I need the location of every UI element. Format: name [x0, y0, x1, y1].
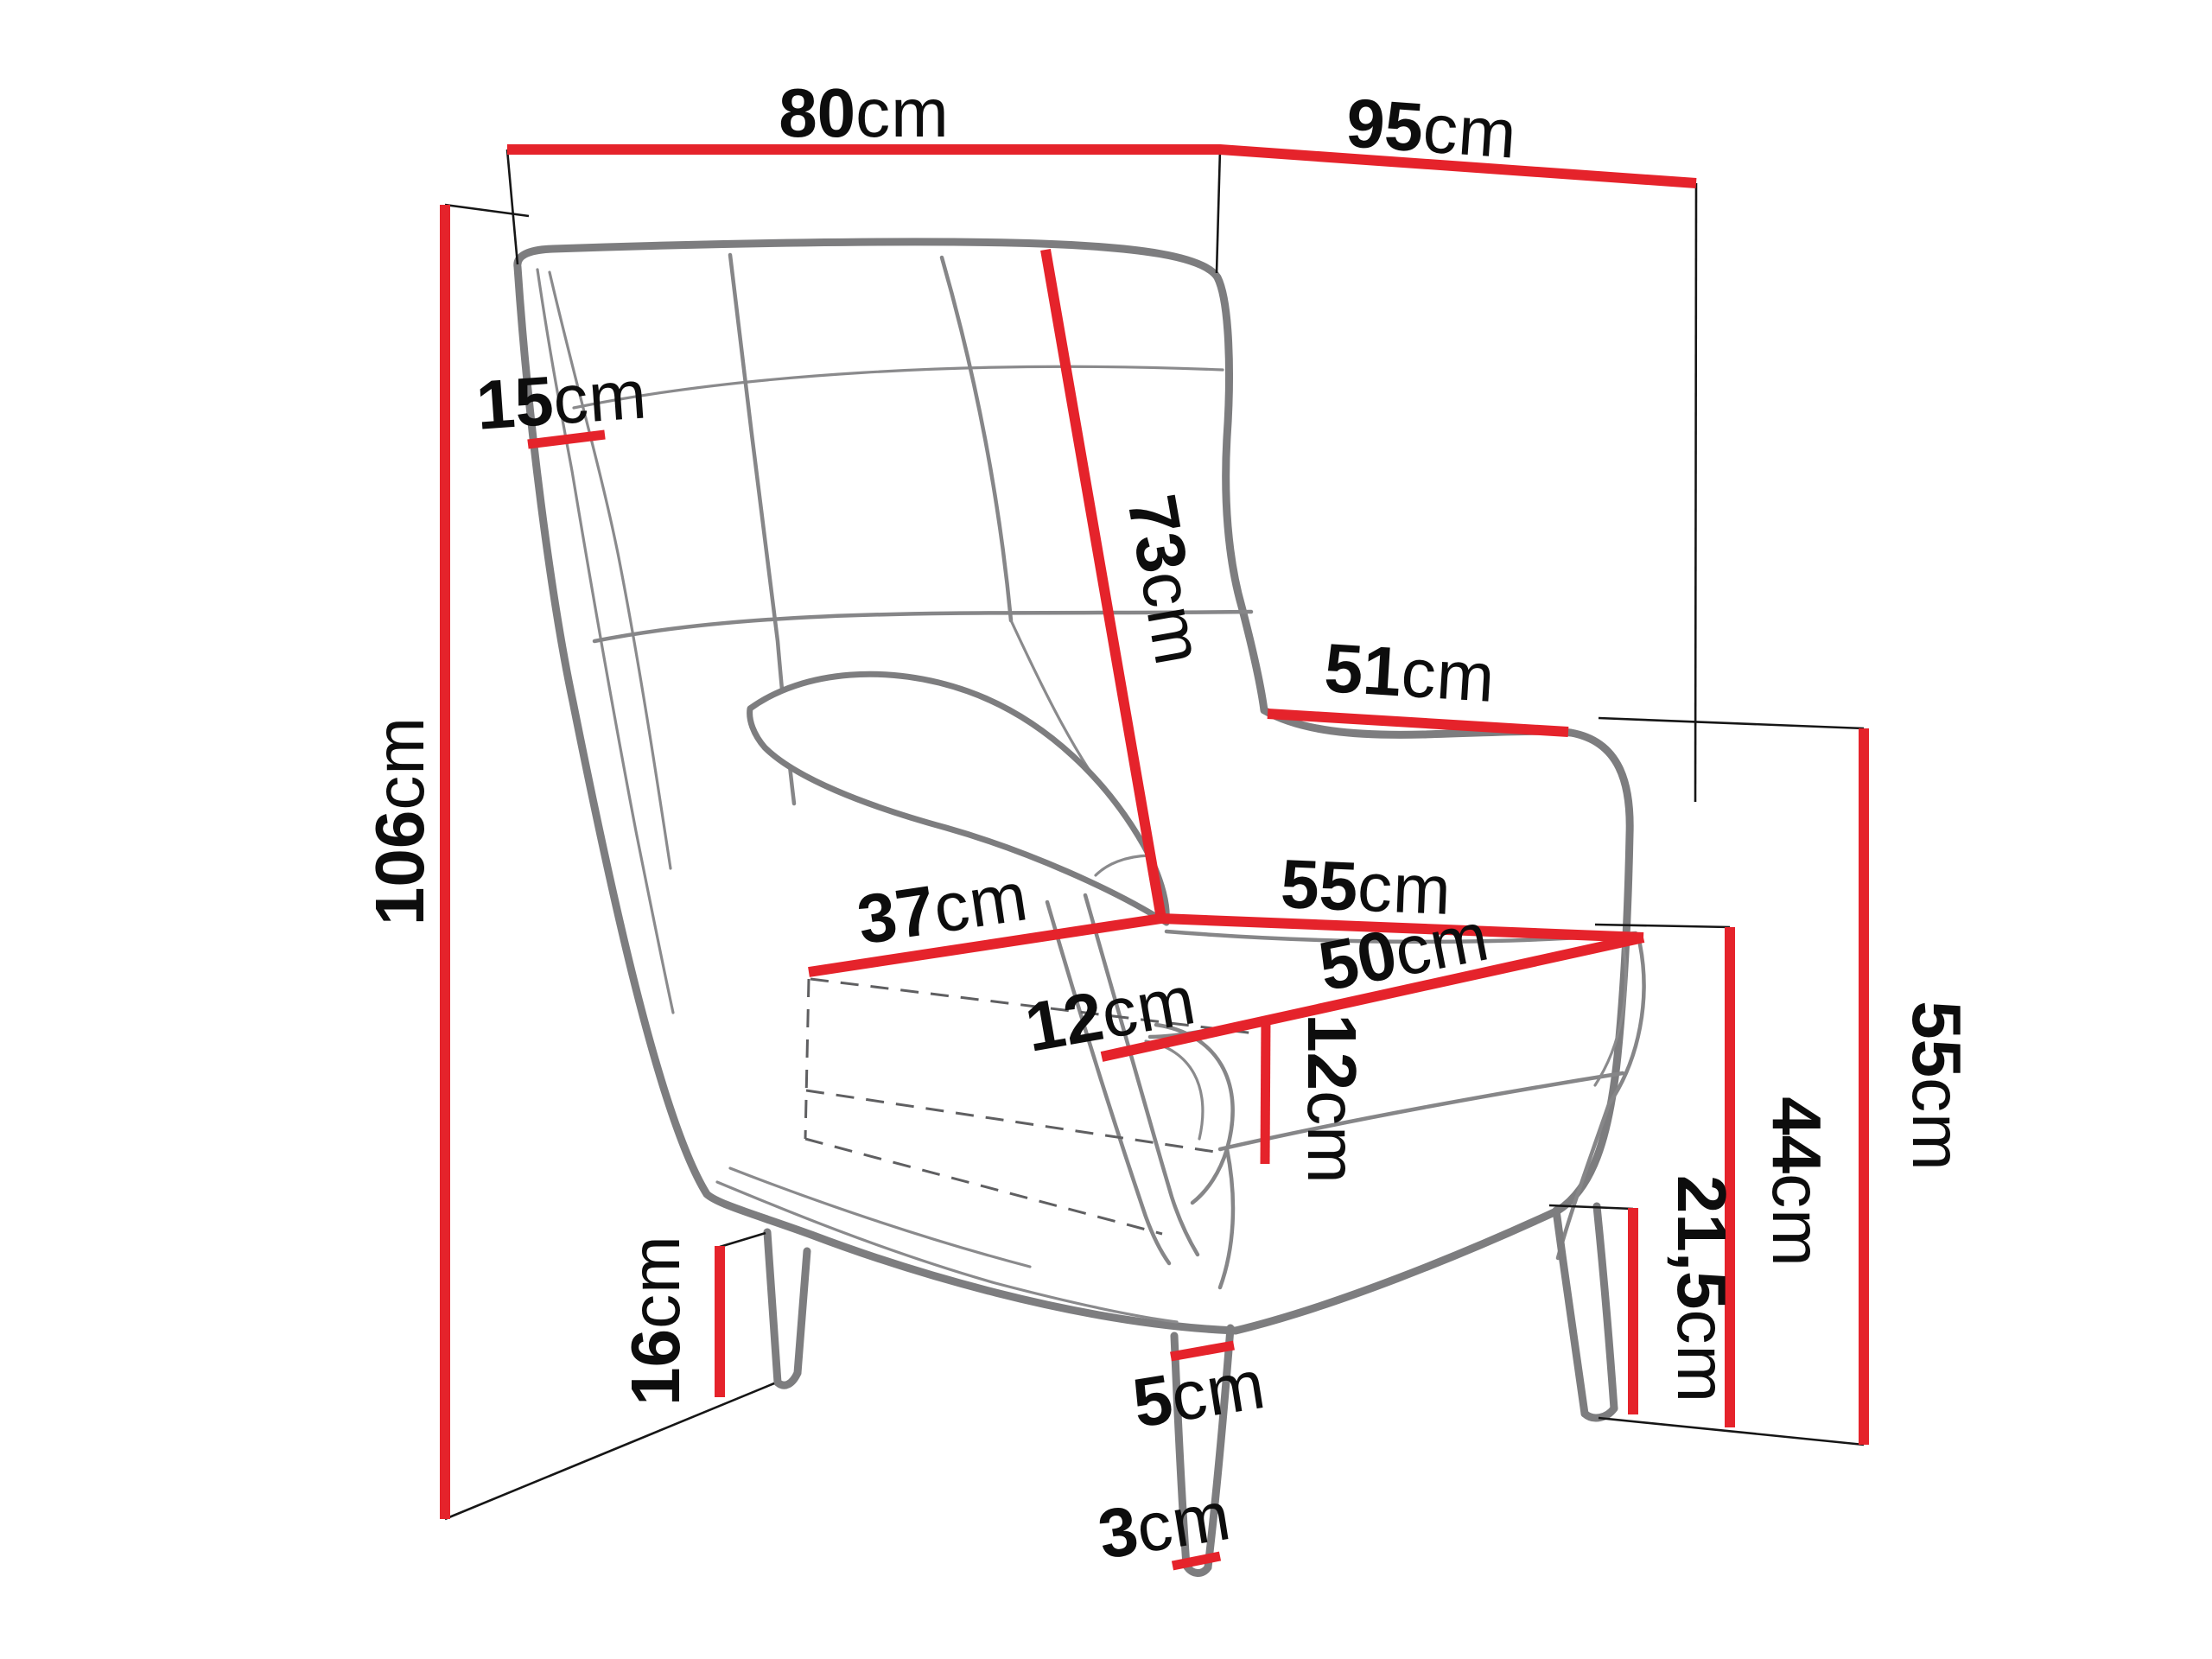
dim-label-51cm: 51cm: [1322, 629, 1497, 716]
dim-label-44cm: 44cm: [1758, 1096, 1835, 1268]
floor-line-left: [445, 1383, 774, 1519]
dim-label-55cm-right: 55cm: [1898, 1001, 1975, 1172]
ext-80-95-corner: [1217, 149, 1220, 273]
ext-80-left: [507, 149, 518, 264]
dim-label-12cm-vertical: 12cm: [1294, 1014, 1370, 1185]
dim-line-12-vertical: [1265, 1017, 1266, 1164]
dim-label-80cm: 80cm: [779, 74, 950, 151]
dim-label-15cm: 15cm: [474, 355, 649, 444]
ext-55-right-top: [1599, 718, 1864, 728]
dim-line-80-95: [507, 149, 1696, 183]
ext-16-top: [720, 1233, 766, 1247]
dim-label-16cm: 16cm: [617, 1235, 694, 1406]
dimension-diagram: 80cm 95cm 15cm 73cm 51cm 106cm 37cm 55cm…: [0, 0, 2212, 1659]
front-left-leg: [767, 1232, 807, 1385]
ext-106-top: [445, 205, 529, 216]
dim-label-5cm: 5cm: [1128, 1345, 1270, 1442]
dim-label-21-5cm: 21,5cm: [1663, 1175, 1740, 1403]
diagram-canvas: 80cm 95cm 15cm 73cm 51cm 106cm 37cm 55cm…: [0, 0, 2212, 1659]
ext-95-right: [1695, 183, 1696, 802]
dim-label-95cm: 95cm: [1344, 84, 1519, 173]
dim-label-106cm: 106cm: [361, 716, 438, 925]
